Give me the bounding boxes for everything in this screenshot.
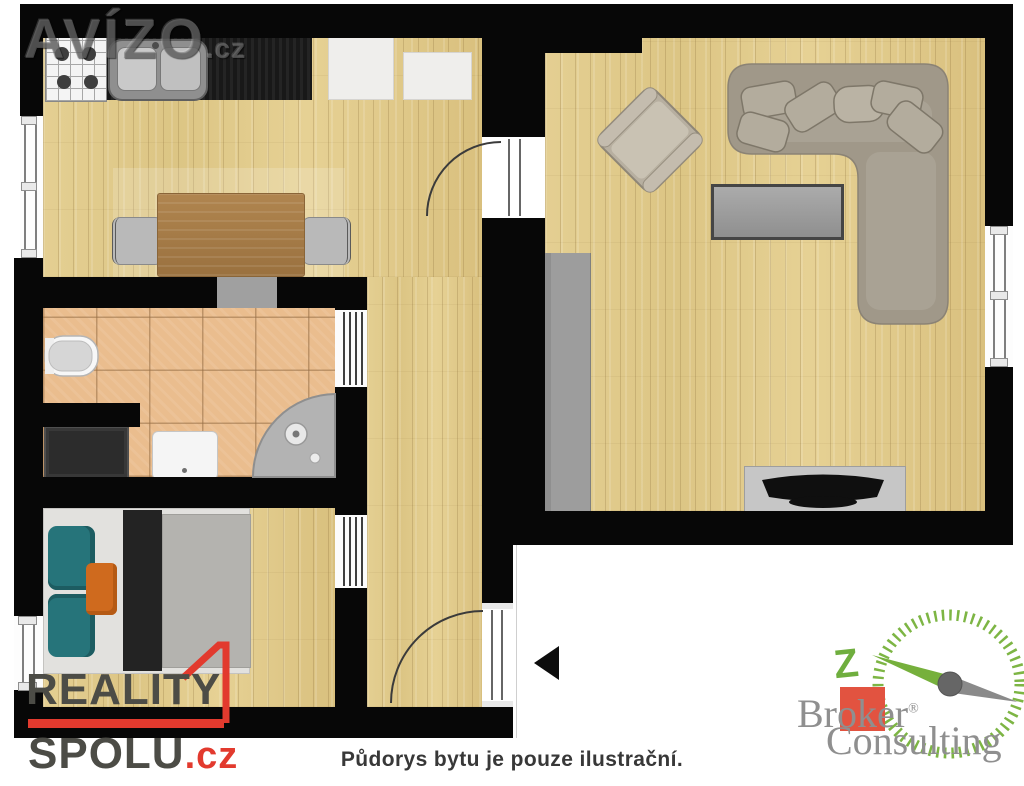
wall-living-bottom (505, 511, 1013, 545)
door-slat (355, 517, 357, 586)
avizo-tld: .cz (206, 33, 246, 64)
avizo-name: AVÍZO (24, 7, 206, 70)
wall-entrance-upper (482, 511, 513, 603)
wall-right-upper (985, 4, 1013, 228)
reality-spolu-underline (28, 719, 224, 728)
door-slat (355, 312, 357, 385)
kitchen-cabinet (328, 36, 394, 100)
door-slat (361, 517, 363, 586)
door-slat (361, 312, 363, 385)
dining-chair (302, 217, 351, 265)
window-connector (21, 182, 37, 191)
compass-letter: Z (832, 641, 861, 688)
wall-divider-upper (482, 38, 545, 137)
burner-icon (57, 75, 71, 89)
window-living (985, 226, 1013, 367)
window-connector (990, 226, 1008, 235)
door-slat (349, 517, 351, 586)
living-room-floor (545, 38, 985, 511)
wall-left-middle (14, 258, 43, 618)
wall-bathroom-right-a (335, 277, 367, 310)
bed (43, 508, 250, 674)
door-frame-cap (482, 701, 513, 707)
dark-bed-runner (123, 510, 162, 671)
wall-bathroom-right-c (335, 588, 367, 707)
wall-bathroom-top-left (43, 277, 217, 308)
reality-spolu-line1: REALITY (26, 668, 221, 712)
reality-spolu-logo: REALITY SPOLU.cz (26, 668, 221, 712)
door-bedroom (335, 515, 367, 588)
wardrobe (543, 253, 591, 511)
grey-duvet (162, 514, 251, 668)
bathroom-sink-icon (152, 431, 218, 480)
burner-icon (84, 75, 98, 89)
wall-entrance-lower (482, 707, 513, 738)
window-connector (990, 291, 1008, 300)
drain-dot (182, 468, 187, 473)
hallway-floor (367, 277, 482, 707)
orange-pillow (86, 563, 117, 615)
door-bathroom (335, 310, 367, 387)
dining-table (157, 193, 305, 277)
entrance-arrow-icon (534, 646, 559, 680)
threshold-kitchen-bathroom (217, 277, 277, 308)
wall-bathroom-right-b (335, 387, 367, 515)
wall-washer-nook (43, 403, 140, 427)
wall-top-notch (545, 38, 642, 53)
window-kitchen (20, 116, 43, 258)
floor-plan-canvas: AVÍZO.cz REALITY SPOLU.cz Broker® Consul… (0, 0, 1024, 786)
door-kitchen-living (482, 137, 545, 218)
dining-chair (112, 217, 163, 265)
door-entrance (482, 603, 513, 707)
tv-stand (744, 466, 906, 515)
door-slat (349, 312, 351, 385)
door-leaf (491, 610, 503, 700)
window-connector (18, 616, 37, 625)
kitchen-cabinet (403, 52, 472, 100)
window-connector (990, 358, 1008, 367)
avizo-watermark: AVÍZO.cz (24, 6, 246, 71)
coffee-table (711, 184, 844, 240)
registered-icon: ® (908, 702, 919, 717)
door-slat (343, 517, 345, 586)
door-frame-cap (482, 603, 513, 609)
caption-text: Půdorys bytu je pouze ilustrační. (0, 748, 1024, 772)
window-connector (21, 116, 37, 125)
washing-machine-icon (44, 426, 129, 479)
exterior-outline (516, 545, 517, 738)
door-slat (343, 312, 345, 385)
wall-bathroom-bottom (14, 477, 335, 508)
door-leaf (508, 139, 521, 216)
wall-divider-lower (482, 218, 545, 511)
window-connector (21, 249, 37, 258)
